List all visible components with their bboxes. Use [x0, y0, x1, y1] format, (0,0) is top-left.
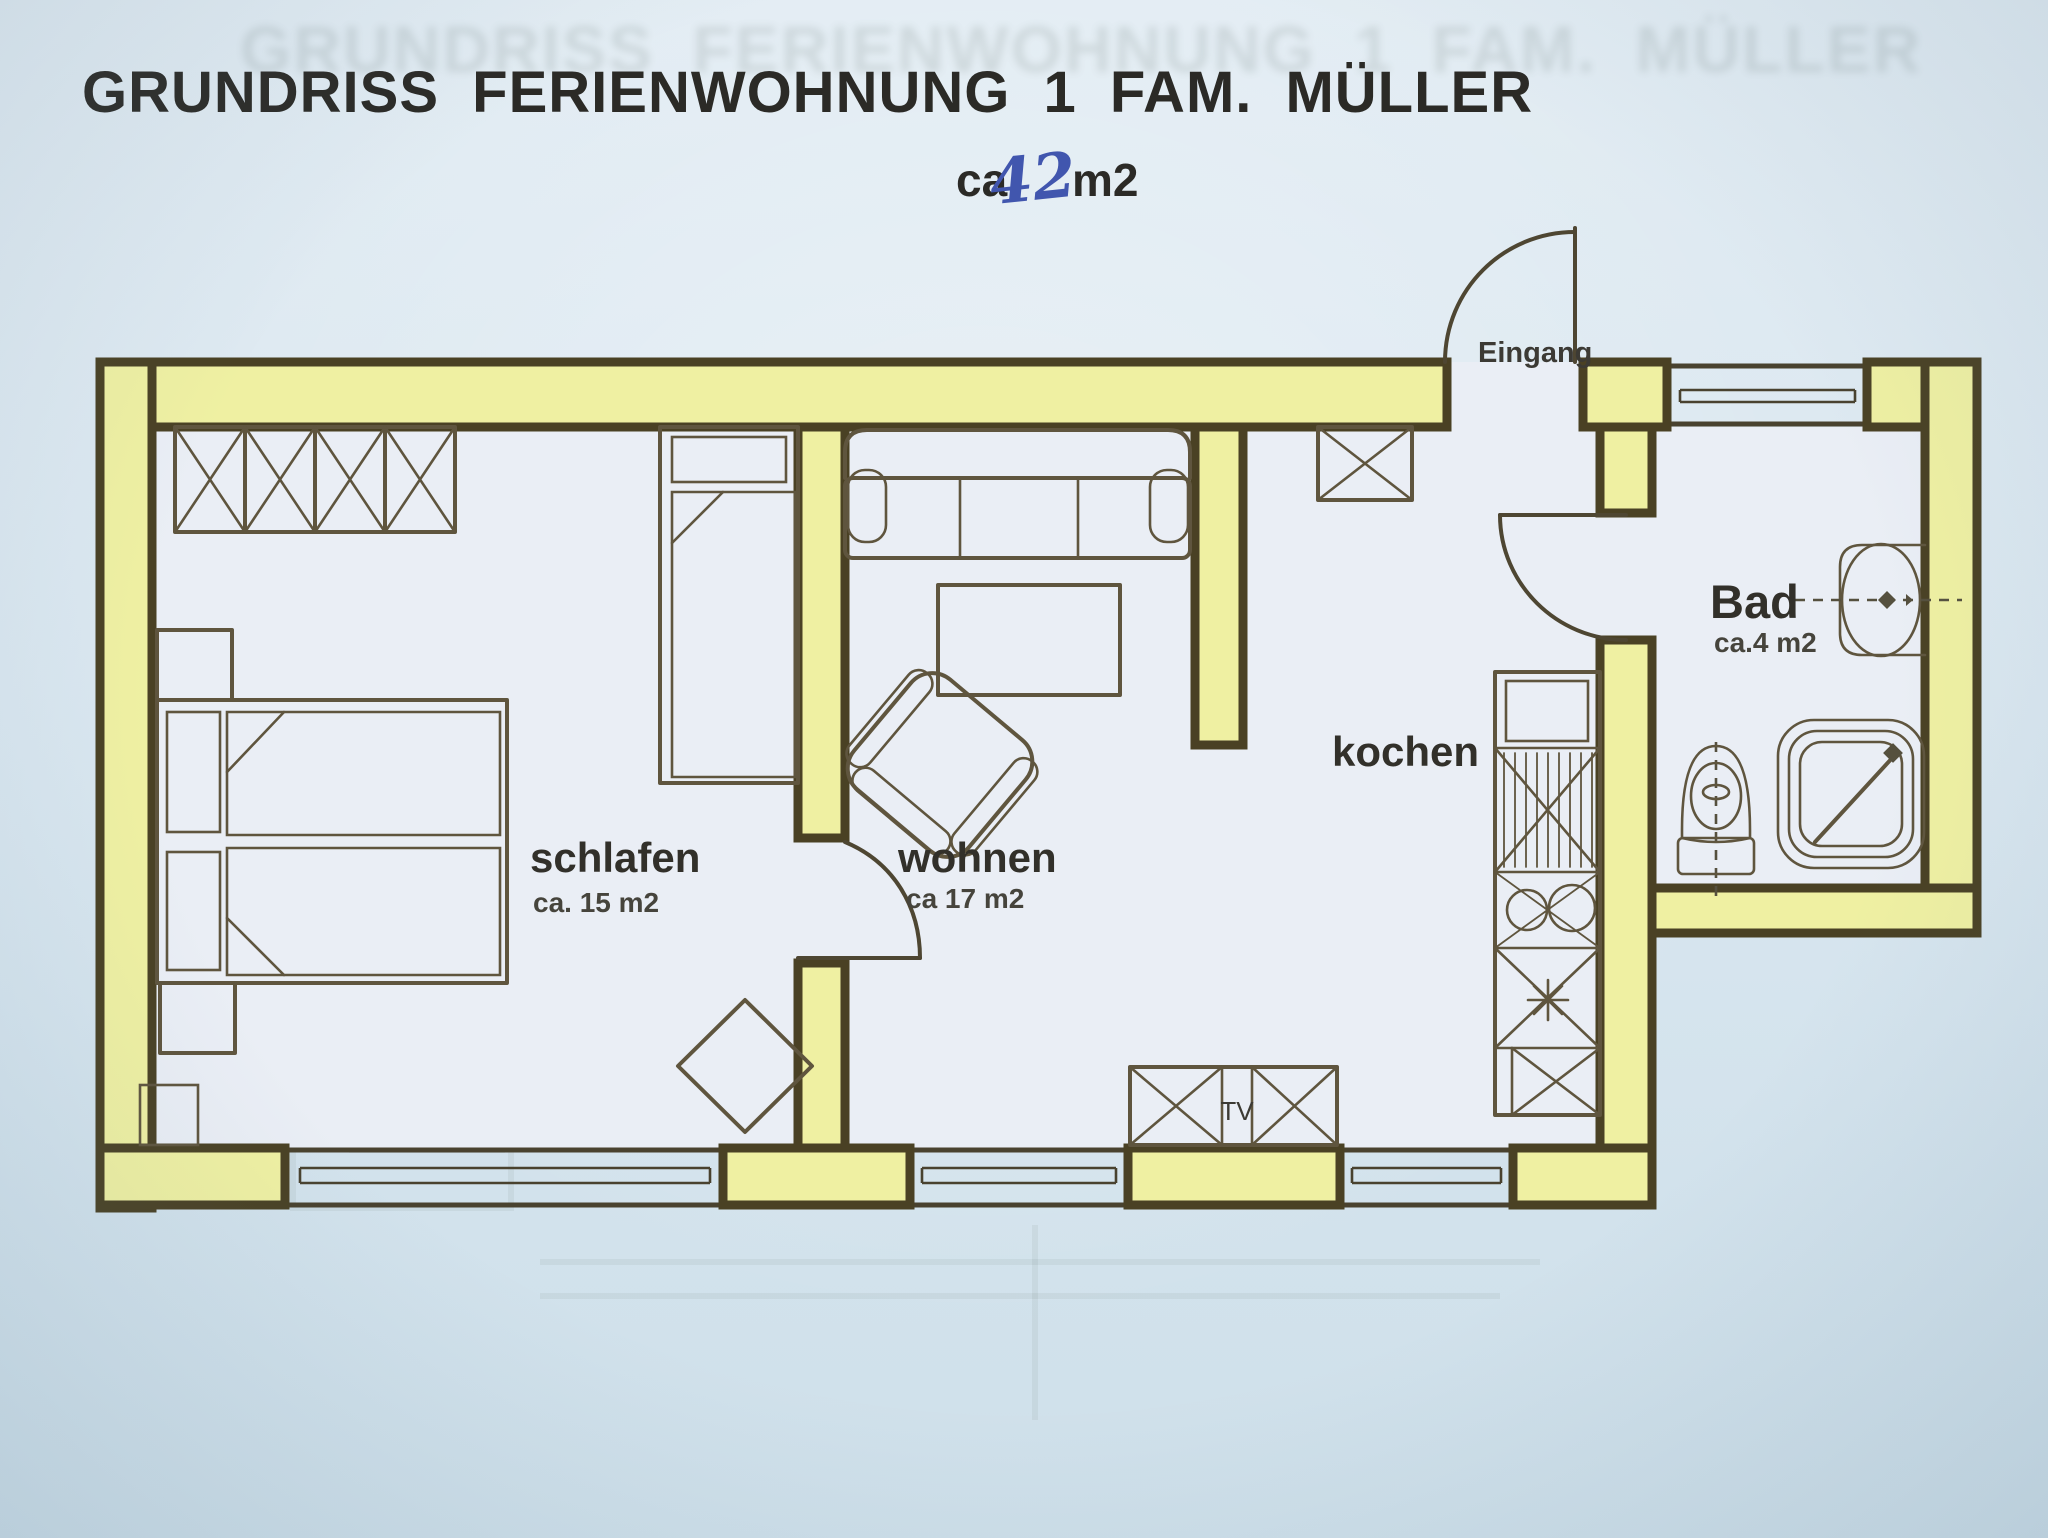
- area-unit: m2: [1072, 154, 1138, 206]
- wall-bottom-stub: [723, 1148, 910, 1205]
- stove-star-symbol: [1528, 980, 1568, 1020]
- handwritten-area-value: 42: [986, 138, 1079, 220]
- window-schlafen: [285, 1150, 723, 1205]
- wall-left: [100, 362, 152, 1208]
- label-bad: Bad: [1710, 575, 1799, 628]
- plan-title: GRUNDRISS FERIENWOHNUNG 1 FAM. MÜLLER: [82, 60, 1533, 125]
- label-schlafen-area: ca. 15 m2: [533, 887, 659, 918]
- wall-bad-right: [1925, 362, 1977, 933]
- scanned-floor-plan-photo: { "page": { "title": "GRUNDRISS FERIENWO…: [0, 0, 2048, 1538]
- tv-label: TV: [1220, 1096, 1254, 1126]
- entrance-floor: [1447, 362, 1583, 427]
- wall-bad-kochen: [1600, 640, 1652, 1148]
- window-bad: [1667, 366, 1867, 424]
- wall-bottom-left: [100, 1148, 285, 1205]
- window-kochen: [1340, 1150, 1513, 1205]
- wall-top: [100, 362, 1447, 427]
- wall-schlafen-wohnen-lower: [798, 963, 845, 1148]
- wall-bad-left-upper: [1600, 427, 1652, 513]
- main-floor: [152, 427, 1600, 1148]
- label-wohnen-area: ca 17 m2: [906, 883, 1024, 914]
- wall-bad-top-left-post: [1583, 362, 1667, 427]
- title-block: GRUNDRISS FERIENWOHNUNG 1 FAM. MÜLLER ca…: [82, 60, 1533, 219]
- bathroom-door-floor: [1600, 513, 1652, 640]
- wall-schlafen-wohnen-upper: [798, 427, 845, 838]
- label-entrance: Eingang: [1478, 337, 1592, 369]
- label-bad-area: ca.4 m2: [1714, 627, 1817, 658]
- label-wohnen: wohnen: [897, 834, 1057, 881]
- wall-bottom-right: [1513, 1148, 1652, 1205]
- wall-bottom-tv: [1128, 1148, 1340, 1205]
- window-wohnen: [910, 1150, 1128, 1205]
- wall-wohnen-kochen: [1195, 427, 1243, 745]
- label-schlafen: schlafen: [530, 834, 700, 881]
- wall-bad-bottom: [1652, 888, 1977, 933]
- label-kochen: kochen: [1332, 728, 1479, 775]
- floor-plan-canvas: GRUNDRISS FERIENWOHNUNG 1 FAM. MÜLLER GR…: [0, 0, 2048, 1538]
